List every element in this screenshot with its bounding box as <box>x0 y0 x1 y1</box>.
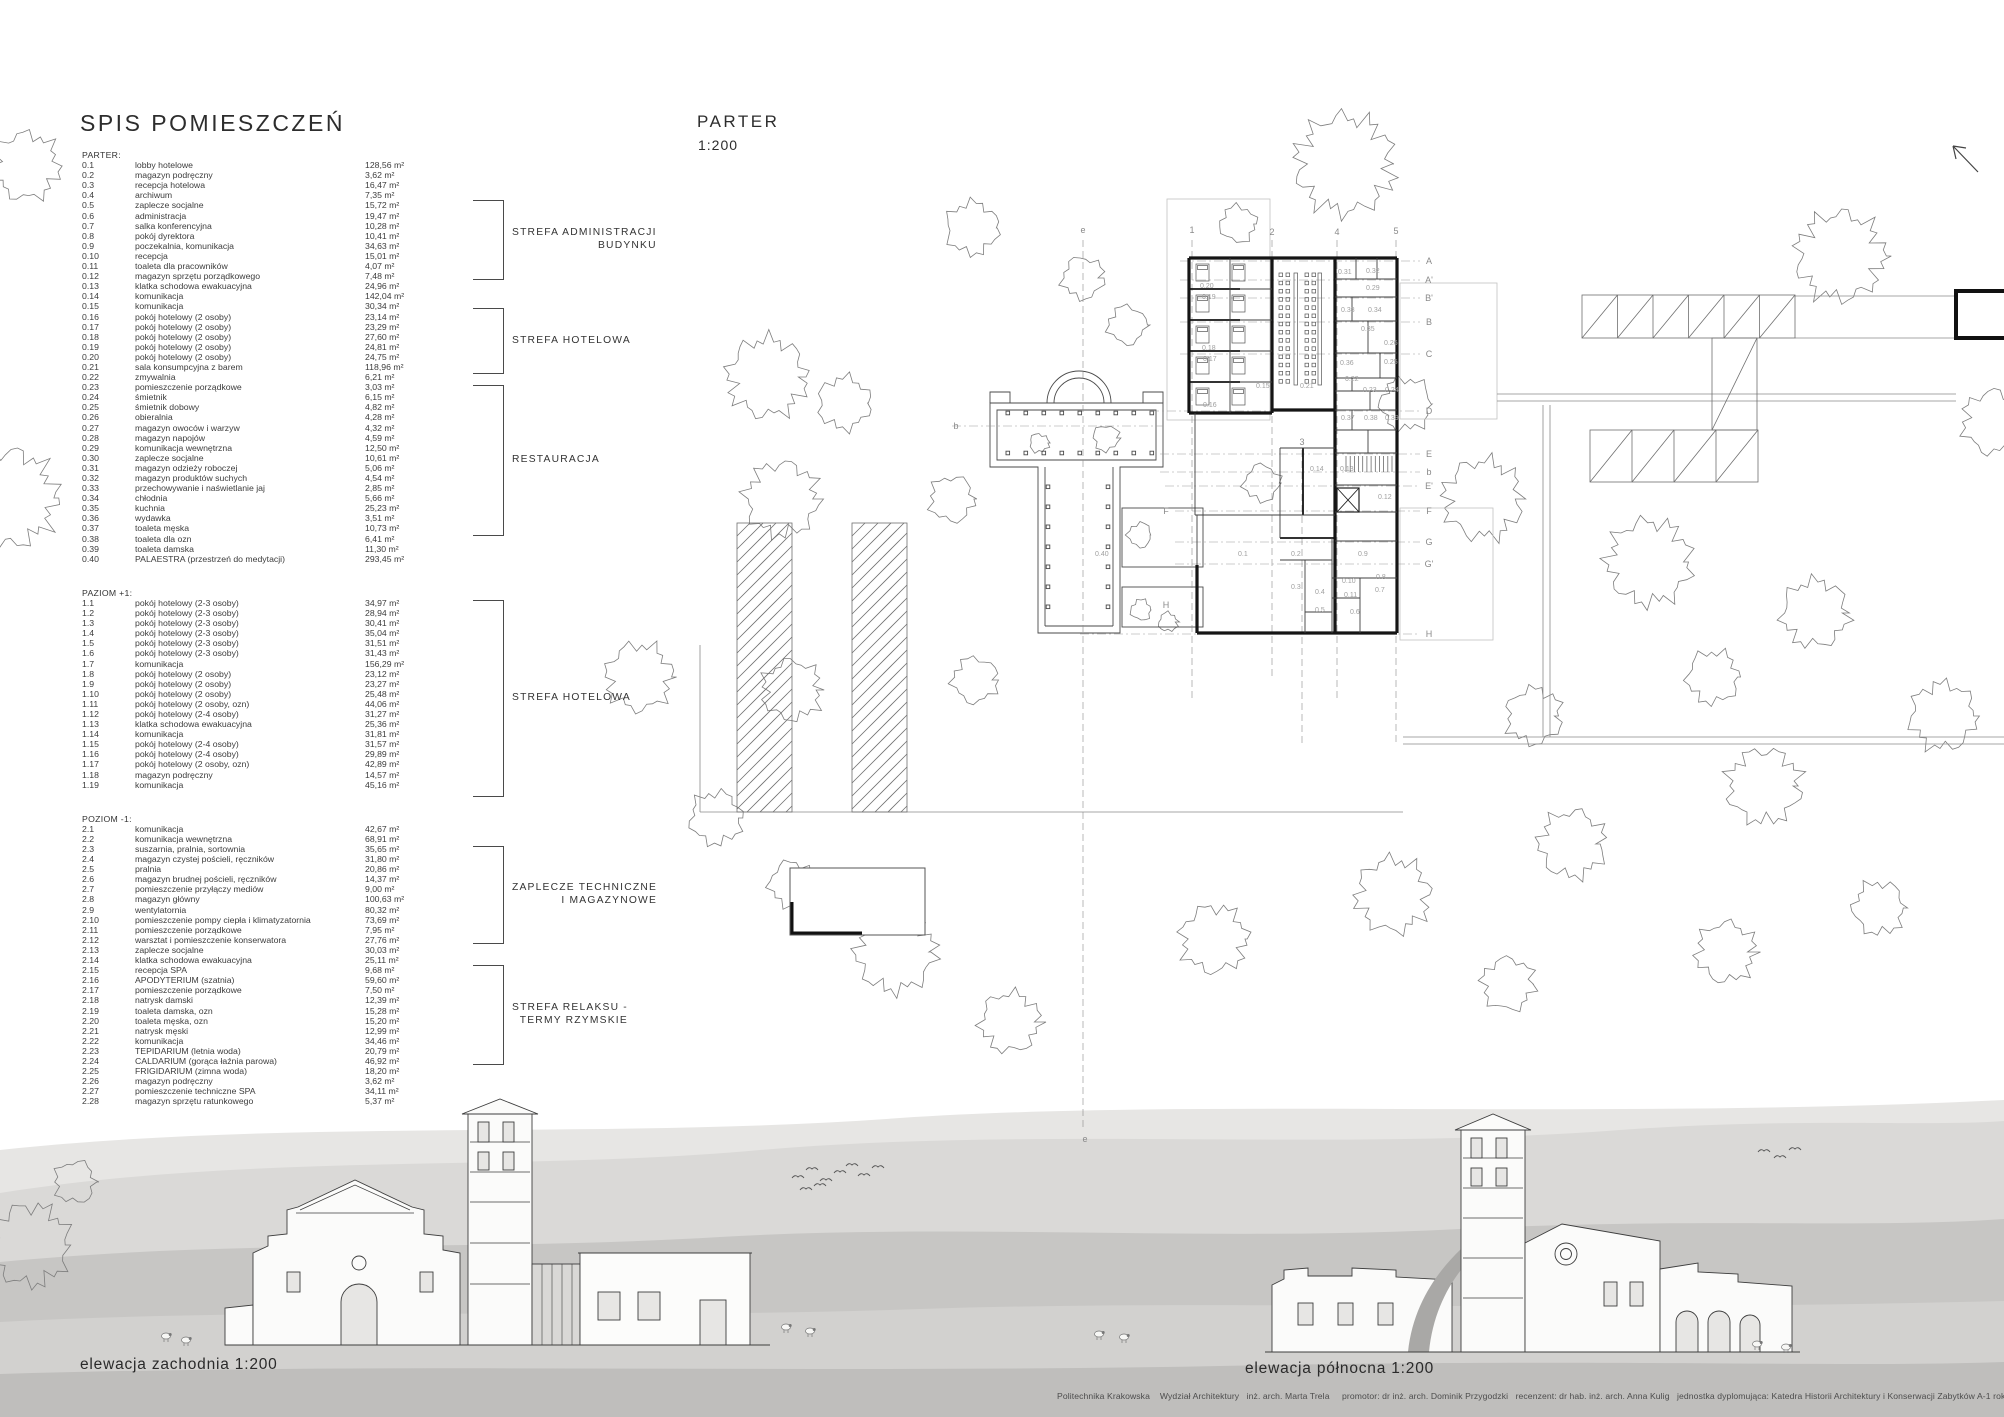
room-row: 0.26obieralnia4,28 m² <box>82 412 416 422</box>
room-row: 1.9pokój hotelowy (2 osoby)23,27 m² <box>82 679 416 689</box>
room-number: 2.17 <box>82 985 135 995</box>
room-row: 2.6magazyn brudnej pościeli, ręczników14… <box>82 874 416 884</box>
room-row: 0.20pokój hotelowy (2 osoby)24,75 m² <box>82 352 416 362</box>
room-name: warsztat i pomieszczenie konserwatora <box>135 935 365 945</box>
room-area: 14,57 m² <box>365 770 416 780</box>
room-name: toaleta dla ozn <box>135 534 365 544</box>
room-number: 1.13 <box>82 719 135 729</box>
room-name: pokój hotelowy (2-4 osoby) <box>135 739 365 749</box>
room-name: komunikacja <box>135 729 365 739</box>
room-area: 11,30 m² <box>365 544 416 554</box>
room-number-label: 0.33 <box>1341 307 1355 314</box>
room-number-label: 0.31 <box>1338 269 1352 276</box>
room-number-label: 0.34 <box>1368 307 1382 314</box>
room-area: 31,27 m² <box>365 709 416 719</box>
tree <box>1093 426 1121 453</box>
room-row: 0.17pokój hotelowy (2 osoby)23,29 m² <box>82 322 416 332</box>
room-number: 2.16 <box>82 975 135 985</box>
room-number: 2.10 <box>82 915 135 925</box>
room-row: 2.9wentylatornia80,32 m² <box>82 905 416 915</box>
room-row: 2.26magazyn podręczny3,62 m² <box>82 1076 416 1086</box>
room-name: wydawka <box>135 513 365 523</box>
room-area: 24,96 m² <box>365 281 416 291</box>
tree <box>975 987 1046 1054</box>
room-number: 1.17 <box>82 759 135 769</box>
tree <box>1478 956 1538 1012</box>
room-number: 2.7 <box>82 884 135 894</box>
zone-bracket <box>473 200 504 280</box>
room-name: magazyn główny <box>135 894 365 904</box>
axis-label: 1 <box>1189 225 1194 235</box>
room-number: 1.5 <box>82 638 135 648</box>
room-number: 0.10 <box>82 251 135 261</box>
axis-label: F <box>1163 506 1169 516</box>
tree <box>1105 304 1150 346</box>
room-number: 0.11 <box>82 261 135 271</box>
room-number: 0.1 <box>82 160 135 170</box>
room-number-label: 0.12 <box>1378 494 1392 501</box>
zone-label: STREFA HOTELOWA <box>512 691 631 704</box>
room-row: 0.11toaleta dla pracowników4,07 m² <box>82 261 416 271</box>
room-area: 80,32 m² <box>365 905 416 915</box>
room-number: 0.31 <box>82 463 135 473</box>
room-row: 0.5zaplecze socjalne15,72 m² <box>82 200 416 210</box>
room-name: archiwum <box>135 190 365 200</box>
room-name: pralnia <box>135 864 365 874</box>
room-number: 2.6 <box>82 874 135 884</box>
room-number: 2.11 <box>82 925 135 935</box>
room-name: poczekalnia, komunikacja <box>135 241 365 251</box>
room-name: pokój hotelowy (2-3 osoby) <box>135 618 365 628</box>
room-row: 0.8pokój dyrektora10,41 m² <box>82 231 416 241</box>
room-area: 4,07 m² <box>365 261 416 271</box>
tree <box>1535 809 1607 882</box>
room-name: magazyn sprzętu porządkowego <box>135 271 365 281</box>
axis-label: C <box>1426 349 1433 359</box>
axis-label: D <box>1426 406 1433 416</box>
room-row: 0.39toaleta damska11,30 m² <box>82 544 416 554</box>
room-name: magazyn podręczny <box>135 170 365 180</box>
room-name: recepcja hotelowa <box>135 180 365 190</box>
room-row: 2.5pralnia20,86 m² <box>82 864 416 874</box>
room-row: 0.25śmietnik dobowy4,82 m² <box>82 402 416 412</box>
room-row: 0.33przechowywanie i naświetlanie jaj2,8… <box>82 483 416 493</box>
room-area: 100,63 m² <box>365 894 416 904</box>
room-number: 2.12 <box>82 935 135 945</box>
room-number: 0.15 <box>82 301 135 311</box>
room-number: 0.21 <box>82 362 135 372</box>
room-name: chłodnia <box>135 493 365 503</box>
room-number-label: 0.23 <box>1363 387 1377 394</box>
room-area: 45,16 m² <box>365 780 416 790</box>
walls-thick <box>1189 258 1397 633</box>
zone-label: STREFA ADMINISTRACJIBUDYNKU <box>512 226 657 252</box>
room-row: 2.1komunikacja42,67 m² <box>82 824 416 834</box>
axis-label: A <box>1426 256 1432 266</box>
room-row: 0.16pokój hotelowy (2 osoby)23,14 m² <box>82 312 416 322</box>
room-row: 0.12magazyn sprzętu porządkowego7,48 m² <box>82 271 416 281</box>
room-area: 3,62 m² <box>365 170 416 180</box>
room-number: 1.1 <box>82 598 135 608</box>
room-row: 0.23pomieszczenie porządkowe3,03 m² <box>82 382 416 392</box>
room-name: wentylatornia <box>135 905 365 915</box>
room-number-label: 0.18 <box>1202 345 1216 352</box>
room-name: recepcja <box>135 251 365 261</box>
room-number-label: 0.11 <box>1344 592 1357 599</box>
room-row: 1.18magazyn podręczny14,57 m² <box>82 770 416 780</box>
room-row: 2.11pomieszczenie porządkowe7,95 m² <box>82 925 416 935</box>
room-name: pokój dyrektora <box>135 231 365 241</box>
room-area: 4,54 m² <box>365 473 416 483</box>
room-name: pokój hotelowy (2-3 osoby) <box>135 638 365 648</box>
room-row: 1.11pokój hotelowy (2 osoby, ozn)44,06 m… <box>82 699 416 709</box>
room-area: 20,79 m² <box>365 1046 416 1056</box>
room-area: 30,34 m² <box>365 301 416 311</box>
room-area: 15,20 m² <box>365 1016 416 1026</box>
room-row: 0.21sala konsumpcyjna z barem118,96 m² <box>82 362 416 372</box>
room-row: 2.21natrysk męski12,99 m² <box>82 1026 416 1036</box>
room-number: 0.12 <box>82 271 135 281</box>
room-number-label: 0.16 <box>1203 402 1217 409</box>
room-number: 1.4 <box>82 628 135 638</box>
room-number: 0.6 <box>82 211 135 221</box>
room-area: 7,35 m² <box>365 190 416 200</box>
room-area: 7,95 m² <box>365 925 416 935</box>
room-row: 2.4magazyn czystej pościeli, ręczników31… <box>82 854 416 864</box>
axis-label: 4 <box>1334 227 1339 237</box>
room-name: śmietnik <box>135 392 365 402</box>
zone-bracket <box>473 965 504 1065</box>
room-row: 0.9poczekalnia, komunikacja34,63 m² <box>82 241 416 251</box>
tree <box>689 789 743 847</box>
room-name: FRIGIDARIUM (zimna woda) <box>135 1066 365 1076</box>
tree <box>1908 678 1980 752</box>
room-name: śmietnik dobowy <box>135 402 365 412</box>
room-list-section: POZIOM -1:2.1komunikacja42,67 m²2.2komun… <box>82 814 416 1107</box>
room-name: natrysk damski <box>135 995 365 1005</box>
room-name: pokój hotelowy (2-3 osoby) <box>135 608 365 618</box>
room-row: 0.29komunikacja wewnętrzna12,50 m² <box>82 443 416 453</box>
room-number-label: 0.15 <box>1256 383 1270 390</box>
zone-label: STREFA RELAKSU -TERMY RZYMSKIE <box>512 1001 628 1027</box>
zone-bracket <box>473 385 504 536</box>
room-area: 23,27 m² <box>365 679 416 689</box>
room-row: 0.37toaleta męska10,73 m² <box>82 523 416 533</box>
room-number-label: 0.35 <box>1361 326 1375 333</box>
room-name: APODYTERIUM (szatnia) <box>135 975 365 985</box>
room-row: 2.13zaplecze socjalne30,03 m² <box>82 945 416 955</box>
room-name: pokój hotelowy (2 osoby) <box>135 679 365 689</box>
tree <box>947 197 1001 257</box>
room-row: 2.22komunikacja34,46 m² <box>82 1036 416 1046</box>
room-name: magazyn brudnej pościeli, ręczników <box>135 874 365 884</box>
room-area: 5,06 m² <box>365 463 416 473</box>
room-name: komunikacja <box>135 659 365 669</box>
room-number: 2.19 <box>82 1006 135 1016</box>
room-area: 7,50 m² <box>365 985 416 995</box>
room-number: 2.1 <box>82 824 135 834</box>
room-row: 0.36wydawka3,51 m² <box>82 513 416 523</box>
room-number: 0.29 <box>82 443 135 453</box>
room-number: 0.20 <box>82 352 135 362</box>
tree <box>1293 109 1398 222</box>
room-row: 2.8magazyn główny100,63 m² <box>82 894 416 904</box>
room-name: komunikacja <box>135 1036 365 1046</box>
tree <box>1220 203 1258 243</box>
room-number: 2.20 <box>82 1016 135 1026</box>
room-number: 2.28 <box>82 1096 135 1106</box>
zone-label: STREFA HOTELOWA <box>512 334 631 347</box>
room-name: komunikacja <box>135 291 365 301</box>
room-area: 3,62 m² <box>365 1076 416 1086</box>
room-name: pokój hotelowy (2 osoby) <box>135 352 365 362</box>
north-arrow <box>1953 146 1978 172</box>
room-area: 31,43 m² <box>365 648 416 658</box>
room-number: 0.25 <box>82 402 135 412</box>
room-number: 2.24 <box>82 1056 135 1066</box>
tree <box>761 659 824 722</box>
room-name: pomieszczenie techniczne SPA <box>135 1086 365 1096</box>
room-row: 2.24CALDARIUM (gorąca łaźnia parowa)46,9… <box>82 1056 416 1066</box>
room-area: 34,46 m² <box>365 1036 416 1046</box>
axis-label: A' <box>1425 275 1433 285</box>
room-row: 0.1lobby hotelowe128,56 m² <box>82 160 416 170</box>
room-area: 28,94 m² <box>365 608 416 618</box>
tree <box>1960 388 2004 456</box>
room-name: TEPIDARIUM (letnia woda) <box>135 1046 365 1056</box>
room-name: komunikacja <box>135 780 365 790</box>
room-row: 0.32magazyn produktów suchych4,54 m² <box>82 473 416 483</box>
room-number: 1.2 <box>82 608 135 618</box>
room-area: 15,28 m² <box>365 1006 416 1016</box>
room-area: 5,66 m² <box>365 493 416 503</box>
room-row: 0.38toaleta dla ozn6,41 m² <box>82 534 416 544</box>
tree <box>948 656 998 705</box>
room-row: 2.28magazyn sprzętu ratunkowego5,37 m² <box>82 1096 416 1106</box>
room-row: 2.20toaleta męska, ozn15,20 m² <box>82 1016 416 1026</box>
room-name: toaleta męska <box>135 523 365 533</box>
room-area: 42,67 m² <box>365 824 416 834</box>
room-number: 1.8 <box>82 669 135 679</box>
room-row: 1.19komunikacja45,16 m² <box>82 780 416 790</box>
room-area: 4,59 m² <box>365 433 416 443</box>
room-area: 9,68 m² <box>365 965 416 975</box>
room-number: 0.19 <box>82 342 135 352</box>
room-row: 2.3suszarnia, pralnia, sortownia35,65 m² <box>82 844 416 854</box>
room-name: komunikacja wewnętrzna <box>135 443 365 453</box>
elevation-west-label: elewacja zachodnia 1:200 <box>80 1356 278 1374</box>
room-number: 0.35 <box>82 503 135 513</box>
room-area: 3,03 m² <box>365 382 416 392</box>
zone-label: ZAPLECZE TECHNICZNEI MAGAZYNOWE <box>512 881 657 907</box>
room-number: 2.9 <box>82 905 135 915</box>
room-number: 0.28 <box>82 433 135 443</box>
tree <box>1177 905 1251 975</box>
room-name: pokój hotelowy (2-4 osoby) <box>135 709 365 719</box>
room-row: 0.13klatka schodowa ewakuacyjna24,96 m² <box>82 281 416 291</box>
room-name: lobby hotelowe <box>135 160 365 170</box>
room-area: 16,47 m² <box>365 180 416 190</box>
room-row: 0.31magazyn odzieży roboczej5,06 m² <box>82 463 416 473</box>
room-area: 12,50 m² <box>365 443 416 453</box>
room-name: magazyn produktów suchych <box>135 473 365 483</box>
room-number: 2.27 <box>82 1086 135 1096</box>
room-name: magazyn podręczny <box>135 1076 365 1086</box>
room-row: 2.15recepcja SPA9,68 m² <box>82 965 416 975</box>
room-number: 2.23 <box>82 1046 135 1056</box>
axis-label: 5 <box>1393 226 1398 236</box>
room-area: 4,32 m² <box>365 423 416 433</box>
room-number: 0.23 <box>82 382 135 392</box>
room-name: pokój hotelowy (2 osoby, ozn) <box>135 699 365 709</box>
room-row: 0.28magazyn napojów4,59 m² <box>82 433 416 443</box>
axis-label: b <box>953 421 958 431</box>
room-area: 15,72 m² <box>365 200 416 210</box>
tree <box>1353 852 1432 936</box>
room-row: 2.25FRIGIDARIUM (zimna woda)18,20 m² <box>82 1066 416 1076</box>
room-row: 0.30zaplecze socjalne10,61 m² <box>82 453 416 463</box>
room-number-label: 0.25 <box>1384 359 1398 366</box>
room-area: 35,65 m² <box>365 844 416 854</box>
room-number: 2.8 <box>82 894 135 904</box>
room-row: 1.10pokój hotelowy (2 osoby)25,48 m² <box>82 689 416 699</box>
site-linework <box>700 146 2004 935</box>
tree <box>739 461 824 540</box>
room-row: 0.7salka konferencyjna10,28 m² <box>82 221 416 231</box>
room-number: 1.7 <box>82 659 135 669</box>
section-heading: POZIOM -1: <box>82 814 416 824</box>
room-name: pokój hotelowy (2 osoby) <box>135 322 365 332</box>
room-number: 0.14 <box>82 291 135 301</box>
room-number: 0.40 <box>82 554 135 564</box>
room-number: 0.37 <box>82 523 135 533</box>
room-number: 0.32 <box>82 473 135 483</box>
room-number: 1.9 <box>82 679 135 689</box>
room-number: 0.13 <box>82 281 135 291</box>
room-number: 0.39 <box>82 544 135 554</box>
room-area: 5,37 m² <box>365 1096 416 1106</box>
room-number: 1.3 <box>82 618 135 628</box>
room-name: pomieszczenie porządkowe <box>135 925 365 935</box>
room-area: 24,75 m² <box>365 352 416 362</box>
room-area: 14,37 m² <box>365 874 416 884</box>
tree <box>1030 434 1050 454</box>
room-name: sala konsumpcyjna z barem <box>135 362 365 372</box>
room-area: 10,61 m² <box>365 453 416 463</box>
room-row: 0.4archiwum7,35 m² <box>82 190 416 200</box>
room-area: 6,41 m² <box>365 534 416 544</box>
room-row: 2.19toaleta damska, ozn15,28 m² <box>82 1006 416 1016</box>
elevation-north-label: elewacja północna 1:200 <box>1245 1360 1434 1378</box>
room-number: 0.36 <box>82 513 135 523</box>
room-name: toaleta dla pracowników <box>135 261 365 271</box>
axis-label: 2 <box>1269 227 1274 237</box>
room-number: 2.25 <box>82 1066 135 1076</box>
room-number-label: 0.21 <box>1300 383 1314 390</box>
room-number: 2.21 <box>82 1026 135 1036</box>
ruin-plan <box>990 371 1203 633</box>
room-row: 2.2komunikacja wewnętrzna68,91 m² <box>82 834 416 844</box>
room-area: 293,45 m² <box>365 554 416 564</box>
room-row: 0.6administracja19,47 m² <box>82 211 416 221</box>
room-row: 2.16APODYTERIUM (szatnia)59,60 m² <box>82 975 416 985</box>
room-number-label: 0.20 <box>1200 283 1214 290</box>
room-name: zaplecze socjalne <box>135 453 365 463</box>
room-number: 1.6 <box>82 648 135 658</box>
room-row: 1.16pokój hotelowy (2-4 osoby)29,89 m² <box>82 749 416 759</box>
room-schedule-title: SPIS POMIESZCZEŃ <box>80 110 345 137</box>
room-number-label: 0.29 <box>1366 285 1380 292</box>
axis-label: 3 <box>1299 437 1304 447</box>
axis-label: F <box>1426 506 1432 516</box>
room-area: 29,89 m² <box>365 749 416 759</box>
room-number: 0.22 <box>82 372 135 382</box>
room-name: toaleta damska, ozn <box>135 1006 365 1016</box>
room-number-label: 0.17 <box>1203 356 1217 363</box>
room-area: 35,04 m² <box>365 628 416 638</box>
axis-label: E <box>1426 449 1432 459</box>
room-number-label: 0.2 <box>1291 551 1301 558</box>
room-area: 12,39 m² <box>365 995 416 1005</box>
room-number: 0.9 <box>82 241 135 251</box>
room-area: 156,29 m² <box>365 659 416 669</box>
room-area: 6,15 m² <box>365 392 416 402</box>
room-name: magazyn owoców i warzyw <box>135 423 365 433</box>
room-row: 1.15pokój hotelowy (2-4 osoby)31,57 m² <box>82 739 416 749</box>
plan-scale: 1:200 <box>698 137 738 153</box>
room-row: 0.27magazyn owoców i warzyw4,32 m² <box>82 423 416 433</box>
room-row: 2.23TEPIDARIUM (letnia woda)20,79 m² <box>82 1046 416 1056</box>
tree <box>1378 375 1432 433</box>
room-area: 9,00 m² <box>365 884 416 894</box>
room-area: 10,28 m² <box>365 221 416 231</box>
room-name: pomieszczenie pompy ciepła i klimatyzato… <box>135 915 365 925</box>
room-name: zaplecze socjalne <box>135 945 365 955</box>
room-area: 44,06 m² <box>365 699 416 709</box>
furniture <box>1196 264 1392 472</box>
zone-label: RESTAURACJA <box>512 453 600 466</box>
room-name: komunikacja <box>135 824 365 834</box>
room-name: administracja <box>135 211 365 221</box>
axis-label: G' <box>1425 559 1434 569</box>
room-area: 142,04 m² <box>365 291 416 301</box>
room-name: natrysk męski <box>135 1026 365 1036</box>
room-name: toaleta damska <box>135 544 365 554</box>
room-number: 0.26 <box>82 412 135 422</box>
room-area: 10,73 m² <box>365 523 416 533</box>
room-name: pokój hotelowy (2-3 osoby) <box>135 598 365 608</box>
room-area: 31,81 m² <box>365 729 416 739</box>
room-area: 30,41 m² <box>365 618 416 628</box>
room-name: przechowywanie i naświetlanie jaj <box>135 483 365 493</box>
zone-bracket <box>473 308 504 374</box>
room-name: zaplecze socjalne <box>135 200 365 210</box>
room-number-label: 0.40 <box>1095 551 1109 558</box>
room-number: 1.18 <box>82 770 135 780</box>
room-number-label: 0.5 <box>1315 607 1325 614</box>
room-name: klatka schodowa ewakuacyjna <box>135 719 365 729</box>
room-area: 20,86 m² <box>365 864 416 874</box>
room-number-label: 0.26 <box>1384 340 1398 347</box>
room-name: pomieszczenie porządkowe <box>135 382 365 392</box>
room-row: 2.14klatka schodowa ewakuacyjna25,11 m² <box>82 955 416 965</box>
room-row: 0.3recepcja hotelowa16,47 m² <box>82 180 416 190</box>
room-name: zmywalnia <box>135 372 365 382</box>
walls-thin <box>1195 258 1397 633</box>
room-row: 1.12pokój hotelowy (2-4 osoby)31,27 m² <box>82 709 416 719</box>
room-number-label: 0.38 <box>1364 415 1378 422</box>
room-number: 0.38 <box>82 534 135 544</box>
